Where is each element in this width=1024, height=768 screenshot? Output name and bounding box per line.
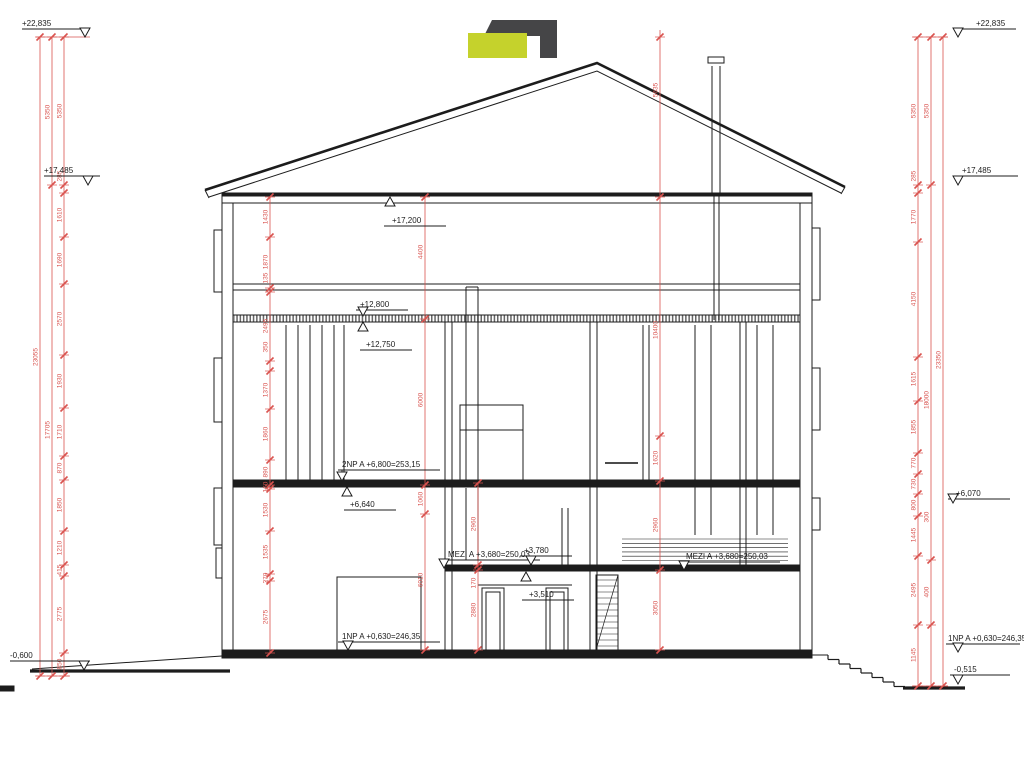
dim-value-label: 285	[911, 170, 918, 181]
dim-value-label: 160	[263, 481, 270, 492]
dim-value-label: 890	[263, 466, 270, 477]
dim-value-label: 415	[57, 564, 64, 575]
dim-value-label: 730	[911, 478, 918, 489]
dim-value-label: 1060	[418, 491, 425, 506]
dim-value-label: 10400	[653, 321, 660, 339]
floor-mezzanine	[446, 565, 800, 571]
elevation-label: -0,600	[10, 651, 33, 660]
elevation-label: +17,485	[962, 166, 992, 175]
elevation-label: +6,070	[956, 489, 981, 498]
dim-value-label: 2675	[263, 609, 270, 624]
elevation-label: MEZI A +3,680=250,03	[448, 550, 530, 559]
dim-value-label: 1710	[57, 424, 64, 439]
elevation-label: -0,515	[954, 665, 977, 674]
elevation-label: +6,640	[350, 500, 375, 509]
dim-value-label: 1210	[57, 540, 64, 555]
elevation-label: +17,485	[44, 166, 74, 175]
dim-value-label: 1855	[911, 419, 918, 434]
dim-value-label: 1145	[911, 648, 918, 662]
dim-value-label: 300	[924, 511, 931, 522]
elevation-label: 1NP A +0,630=246,35	[948, 634, 1024, 643]
dim-value-label: 850	[57, 658, 64, 669]
elevation-label: +3,510	[529, 590, 554, 599]
dim-value-label: 1770	[911, 209, 918, 224]
dim-value-label: 3050	[653, 600, 660, 615]
dim-value-label: 1870	[263, 254, 270, 269]
dim-value-label: 1850	[57, 497, 64, 512]
dim-value-label: 5350	[911, 103, 918, 118]
elevation-label: 1NP A +0,630=246,35	[342, 632, 421, 641]
logo-yellow-square	[468, 33, 527, 58]
dim-value-label: 800	[911, 499, 918, 510]
elevation-label: 2NP A +6,800=253,15	[342, 460, 421, 469]
dim-value-label: 1930	[57, 373, 64, 388]
dim-value-label: 1445	[911, 527, 918, 542]
dim-value-label: 18000	[924, 391, 931, 409]
dim-value-label: 4400	[418, 244, 425, 259]
dim-value-label: 1860	[263, 426, 270, 441]
dim-value-label: 2570	[57, 311, 64, 326]
dim-value-label: 1610	[57, 207, 64, 222]
dim-value-label: 1530	[263, 502, 270, 517]
drawing-canvas: 2305553501770553502851610169025701930171…	[0, 0, 1024, 768]
dim-value-label: 1615	[911, 371, 918, 386]
dim-value-label: 1690	[57, 252, 64, 267]
dim-value-label: 2960	[653, 517, 660, 532]
ground-edge-mark	[0, 686, 14, 691]
floor-2np	[233, 480, 800, 487]
dim-value-label: 1430	[263, 209, 270, 224]
dim-value-label: 770	[911, 457, 918, 468]
dim-value-label: 400	[924, 586, 931, 597]
dim-value-label: 1535	[263, 544, 270, 559]
dim-value-label: 5350	[57, 103, 64, 118]
dim-value-label: 23055	[33, 348, 40, 366]
dim-value-label: 270	[263, 572, 270, 583]
dim-value-label: 1370	[263, 382, 270, 397]
dim-value-label: 17705	[45, 421, 52, 439]
dim-value-label: 350	[263, 341, 270, 352]
elevation-label: MEZI A +3,680=250,03	[686, 552, 768, 561]
dim-value-label: 5635	[653, 82, 660, 97]
dim-value-label: 5350	[924, 103, 931, 118]
dim-value-label: 2880	[471, 602, 478, 617]
dim-value-label: 6010	[418, 572, 425, 587]
dim-value-label: 6000	[418, 392, 425, 407]
elevation-label: +17,200	[392, 216, 422, 225]
tie-beam	[222, 193, 812, 196]
dim-value-label: 4150	[911, 291, 918, 306]
dim-value-label: 1620	[653, 450, 660, 465]
dim-value-label: 2960	[471, 516, 478, 531]
dim-value-label: 5350	[45, 104, 52, 119]
elevation-label: +22,835	[976, 19, 1006, 28]
dim-value-label: 2495	[263, 318, 270, 333]
elevation-label: +22,835	[22, 19, 52, 28]
elevation-label: +12,750	[366, 340, 396, 349]
building-section-drawing: 2305553501770553502851610169025701930171…	[0, 0, 1024, 768]
dim-value-label: 2495	[911, 582, 918, 597]
dim-value-label: 23350	[936, 351, 943, 369]
elevation-label: +3,780	[524, 546, 549, 555]
dim-value-label: 170	[471, 577, 478, 588]
dim-value-label: 2775	[57, 606, 64, 621]
dim-value-label: 135	[263, 272, 270, 283]
dim-value-label: 870	[57, 462, 64, 473]
floor-1np	[222, 650, 812, 658]
